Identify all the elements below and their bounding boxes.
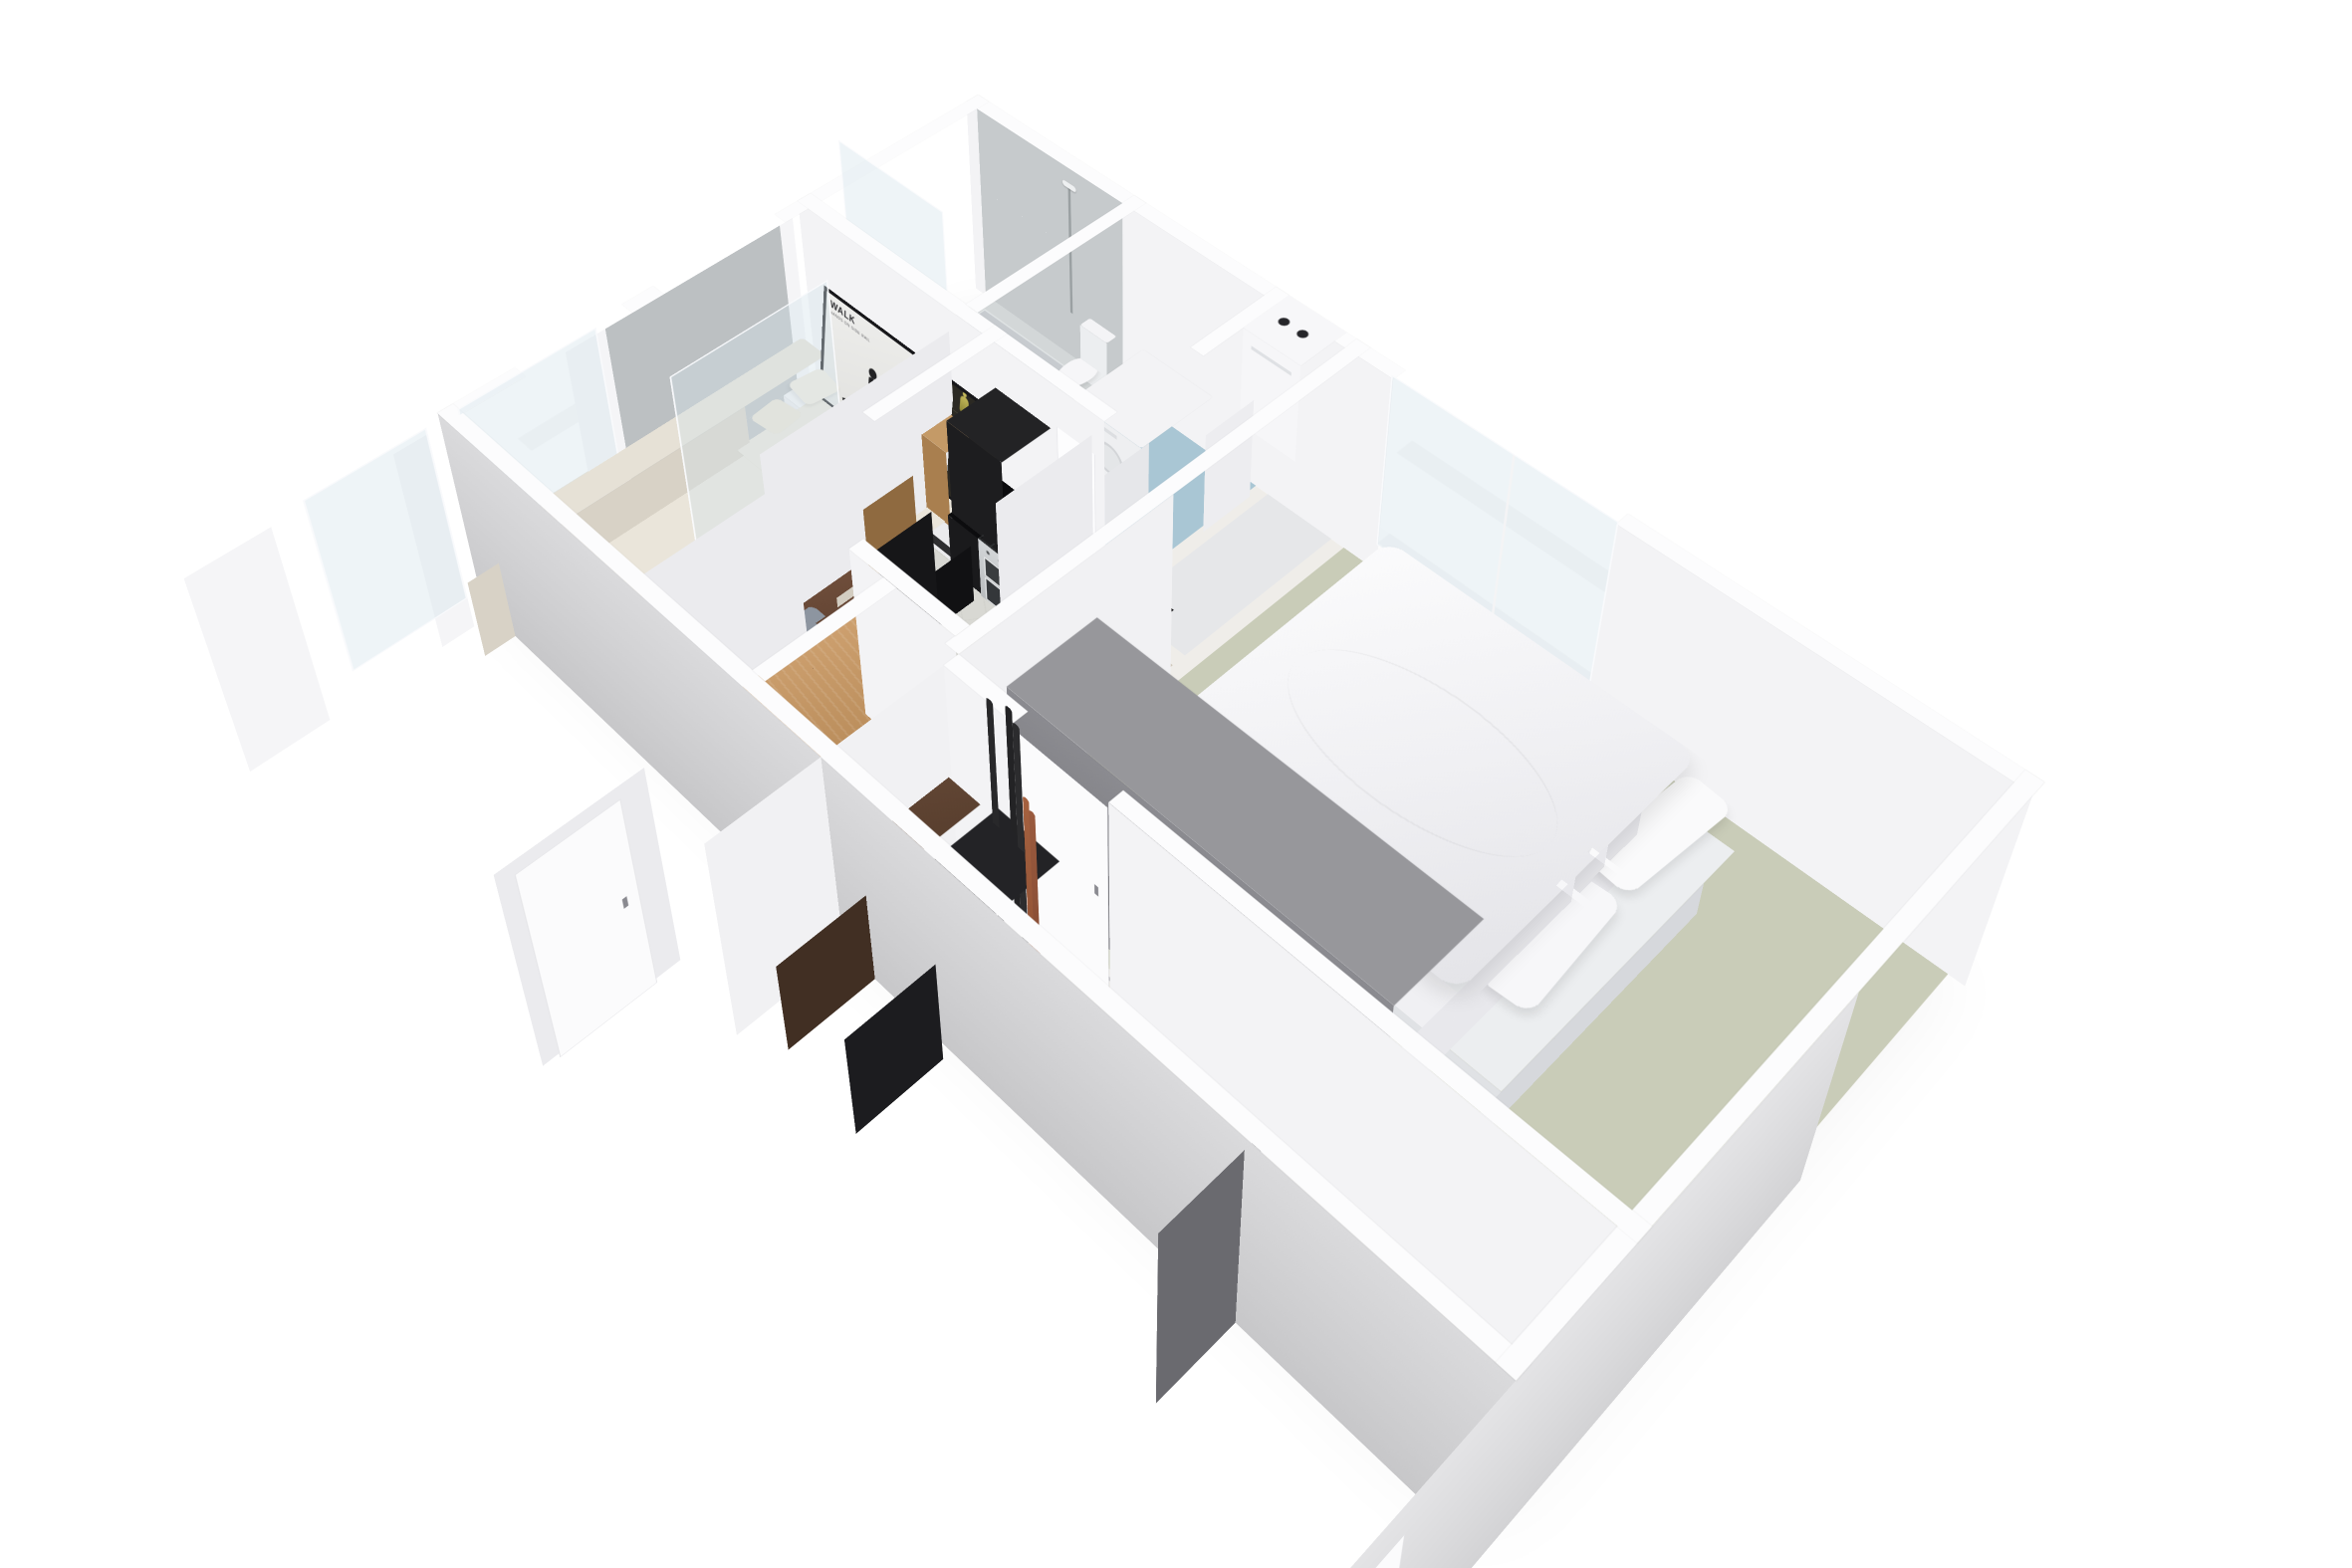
shower-tray xyxy=(882,309,1073,442)
hallway-door xyxy=(515,798,658,1057)
chair-seat xyxy=(896,711,973,773)
wall-tops xyxy=(483,282,1975,1557)
wooden-crate-top xyxy=(894,382,994,453)
duvet xyxy=(1143,541,1699,993)
window-sill-top xyxy=(549,467,659,540)
wall-face xyxy=(996,435,1094,697)
chest-of-drawers xyxy=(483,282,1975,1557)
wall-top xyxy=(967,95,1405,378)
black-rod xyxy=(986,697,1005,925)
counter-side xyxy=(917,546,975,640)
washing-machine xyxy=(483,282,1975,1557)
stove-knob-row xyxy=(982,545,1041,597)
stove-top xyxy=(978,499,1100,590)
boiler-panel-line xyxy=(1251,345,1291,375)
copper-pipe xyxy=(1029,808,1043,1012)
wall-top xyxy=(1617,514,2044,793)
wooden-crate-side xyxy=(863,476,919,584)
wall-top xyxy=(775,95,988,222)
kitchen-entry-floor xyxy=(799,671,882,743)
utility-top xyxy=(913,808,1059,932)
wall-top xyxy=(849,539,970,636)
window-mullion xyxy=(1491,455,1516,625)
sofa-face xyxy=(467,406,754,656)
stove-front xyxy=(978,539,1047,649)
table-edge xyxy=(711,709,804,801)
utility-stand xyxy=(483,282,1975,1557)
sofa-face xyxy=(571,556,657,665)
tv-workout-video: WALK HANDS ON SIDE RAIL xyxy=(823,291,945,486)
area-rug xyxy=(483,282,1975,1557)
bedroom-wall-face xyxy=(704,494,1173,1035)
console-drawer-handle xyxy=(846,460,856,470)
wall-face xyxy=(1108,802,1637,1425)
sofa-pillow xyxy=(787,367,841,406)
wall-top xyxy=(944,654,1029,723)
window-sill-top xyxy=(678,375,803,457)
sofa-seat xyxy=(571,391,906,627)
drawer xyxy=(809,823,888,911)
kitchen-counter xyxy=(483,282,1975,1557)
wardrobe-front xyxy=(1007,687,1394,1182)
media-console xyxy=(483,282,1975,1557)
counter-top xyxy=(948,478,1033,540)
dining-table xyxy=(483,282,1975,1557)
tv-frame: WALK HANDS ON SIDE RAIL xyxy=(820,285,1004,533)
wall-top xyxy=(798,193,1116,421)
table-leg xyxy=(718,720,729,762)
coffee-table xyxy=(483,282,1975,1557)
wall-top xyxy=(966,195,1146,313)
sliding-door-track xyxy=(1027,906,1120,989)
interior-doors xyxy=(483,282,1975,1557)
utility-nook-floor xyxy=(1121,494,1331,655)
toilet-bowl xyxy=(1048,353,1105,393)
wardrobe-side xyxy=(1156,1133,1263,1404)
bathroom-door xyxy=(1057,427,1096,606)
shower-wall-panel xyxy=(605,225,802,520)
black-rod xyxy=(1005,704,1022,932)
total-time-stat: TOTAL TIME 11:39 xyxy=(943,439,991,488)
sofa-face xyxy=(602,483,868,698)
door-handle xyxy=(1063,507,1067,519)
shower-column xyxy=(1068,188,1073,314)
bed-base-side xyxy=(1461,883,1705,1160)
hallway-floor xyxy=(792,798,1575,1523)
sofa-chaise xyxy=(736,391,970,566)
living-window-glass xyxy=(457,328,626,580)
coffee-table-face xyxy=(785,596,846,676)
glazing xyxy=(483,282,1975,1557)
pillow xyxy=(1477,868,1624,1014)
wall-face xyxy=(184,527,331,772)
chair-back xyxy=(869,738,916,819)
bedroom-sliding-door xyxy=(1018,733,1109,992)
oven-door xyxy=(985,576,1044,645)
treadmill-illustration xyxy=(833,337,926,473)
wall-faces xyxy=(483,282,1975,1557)
corner-sofa xyxy=(483,282,1975,1557)
coffee-table-top xyxy=(785,553,906,646)
black-rod xyxy=(1013,721,1029,948)
duvet-fold xyxy=(1247,618,1596,894)
drawer xyxy=(814,861,892,948)
wall-face xyxy=(967,102,1394,570)
exercise-time-stat: EXERCISE TIME 00:23 xyxy=(944,422,992,473)
black-cabinet-top xyxy=(946,386,1053,463)
tv-workout-title: WALK xyxy=(830,298,856,328)
front-door xyxy=(1257,1534,1405,1568)
exterior-wall-face xyxy=(437,413,1516,1557)
washer-side xyxy=(1075,443,1149,560)
black-cabinet-side xyxy=(876,512,939,661)
toilet xyxy=(483,282,1975,1557)
living-room-floor xyxy=(507,397,1106,863)
gray-wardrobe-unit xyxy=(483,282,1975,1557)
counter-top xyxy=(978,610,1121,722)
counter-front xyxy=(948,515,983,595)
wall-face xyxy=(566,218,814,545)
tv-wall-face xyxy=(798,201,1105,613)
wall-top xyxy=(437,404,1531,1381)
body-front-icon xyxy=(959,394,969,416)
sofa-pillow xyxy=(749,397,803,435)
duvet-front xyxy=(1143,740,1458,1050)
boiler-side xyxy=(1203,400,1254,533)
sofa-backrest xyxy=(538,336,826,524)
drawer xyxy=(806,803,885,891)
window-sill-top xyxy=(1379,534,1599,689)
table-edge xyxy=(791,684,946,809)
dining-chairs xyxy=(483,282,1975,1557)
rug xyxy=(637,485,1044,801)
door-handle xyxy=(1094,884,1098,897)
exterior-wall-face-front xyxy=(1226,992,1859,1568)
apartment-floor-plan: WALK HANDS ON SIDE RAIL xyxy=(483,282,1975,1557)
bathroom-floor xyxy=(987,399,1256,597)
wardrobe-top xyxy=(1007,617,1484,1006)
window-outer-frame xyxy=(1397,441,1628,597)
body-back-icon xyxy=(973,404,983,427)
dresser-front xyxy=(800,794,897,961)
copper-pipe xyxy=(1023,795,1037,1001)
chair-seat xyxy=(700,650,775,710)
counter-top xyxy=(1047,553,1174,651)
wall-top xyxy=(437,367,525,422)
door-handle xyxy=(622,896,628,909)
utility-front xyxy=(913,876,981,1027)
shower-room-floor xyxy=(839,295,1123,495)
kitchen-floor xyxy=(812,533,1173,817)
tv-screen: WALK HANDS ON SIDE RAIL xyxy=(823,291,1000,527)
console-top xyxy=(784,366,1074,588)
bed-base-top xyxy=(1142,598,1735,1091)
floor-plan-scene: WALK HANDS ON SIDE RAIL xyxy=(0,0,2352,1568)
boiler-front xyxy=(1240,328,1300,462)
wall-top xyxy=(753,577,896,681)
stove-side xyxy=(979,596,1039,698)
washer-panel xyxy=(1078,408,1116,439)
wall-face xyxy=(494,768,681,1066)
shower-glass-panel xyxy=(838,139,958,451)
bed-base-front xyxy=(1142,796,1502,1122)
console-side xyxy=(988,584,1036,655)
tv-workout-subtitle: HANDS ON SIDE RAIL xyxy=(830,310,871,343)
chair-back xyxy=(796,792,845,875)
grill-door xyxy=(984,557,1044,622)
wall-face xyxy=(1583,524,2033,987)
utility-knobs xyxy=(923,914,952,969)
drawer xyxy=(811,842,889,929)
muscle-diagram-icons xyxy=(947,384,996,436)
washer-top xyxy=(1072,349,1213,448)
sofa-face xyxy=(538,503,576,596)
double-bed xyxy=(483,282,1975,1557)
wall-face xyxy=(849,549,968,829)
shower-head-icon xyxy=(1062,179,1076,193)
wall-top xyxy=(863,326,1008,421)
wall-face xyxy=(639,478,813,771)
floors xyxy=(483,282,1975,1557)
shower-wall-panel xyxy=(977,109,1123,392)
console-front xyxy=(784,395,1031,624)
wooden-crate-front xyxy=(894,413,950,527)
wall-top xyxy=(622,287,663,314)
shower-glass-panel xyxy=(669,280,851,619)
living-window-glass xyxy=(303,427,468,672)
gas-stove xyxy=(483,282,1975,1557)
toilet-tank-front xyxy=(1080,325,1107,396)
bedroom-floor xyxy=(971,548,1948,1393)
wall-top xyxy=(1191,287,1289,355)
chair-seat xyxy=(770,602,843,659)
tv-stats-panel: RESISTANCE OFF EXERCISE TIME 00:23 TOTAL… xyxy=(936,378,1000,528)
pillow xyxy=(1581,772,1735,897)
duvet-side xyxy=(1383,811,1641,1116)
coffee-table-face xyxy=(809,625,875,700)
washer-front xyxy=(1072,399,1141,512)
wall-boiler xyxy=(483,282,1975,1557)
console-open-shelf xyxy=(888,499,1019,611)
sofa-face xyxy=(817,515,883,604)
resistance-stat: RESISTANCE OFF xyxy=(945,404,994,455)
leaning-tv: WALK HANDS ON SIDE RAIL xyxy=(483,282,1975,1557)
dresser-top xyxy=(800,727,980,877)
table-leg xyxy=(798,792,809,834)
window-outer-frame xyxy=(652,286,784,368)
washer-door-icon xyxy=(1094,433,1123,483)
sofa-face xyxy=(836,534,931,636)
doorway-floor-patch xyxy=(1022,904,1123,994)
chair-back xyxy=(700,590,750,668)
wall-face xyxy=(760,332,961,647)
utility-side xyxy=(844,964,943,1134)
counter-front xyxy=(978,679,1033,778)
wall-top xyxy=(945,339,1369,654)
console-drawer-handle xyxy=(817,429,825,439)
wall-top xyxy=(1108,790,1652,1243)
wall-top xyxy=(1496,771,2043,1381)
boiler-top xyxy=(1244,295,1347,365)
table-top xyxy=(711,599,956,791)
black-cabinet-front xyxy=(946,421,1006,573)
toilet-tank xyxy=(1080,319,1117,343)
chair-back xyxy=(627,639,680,719)
wall-face xyxy=(944,665,1022,916)
window-outer-frame xyxy=(519,375,636,450)
bedroom-window-glass xyxy=(1376,374,1619,693)
chair-seat xyxy=(826,762,905,826)
wall-face xyxy=(393,434,475,647)
floor-slab xyxy=(507,296,1948,1523)
counter-front xyxy=(1047,592,1122,707)
dresser-side xyxy=(776,890,881,1050)
